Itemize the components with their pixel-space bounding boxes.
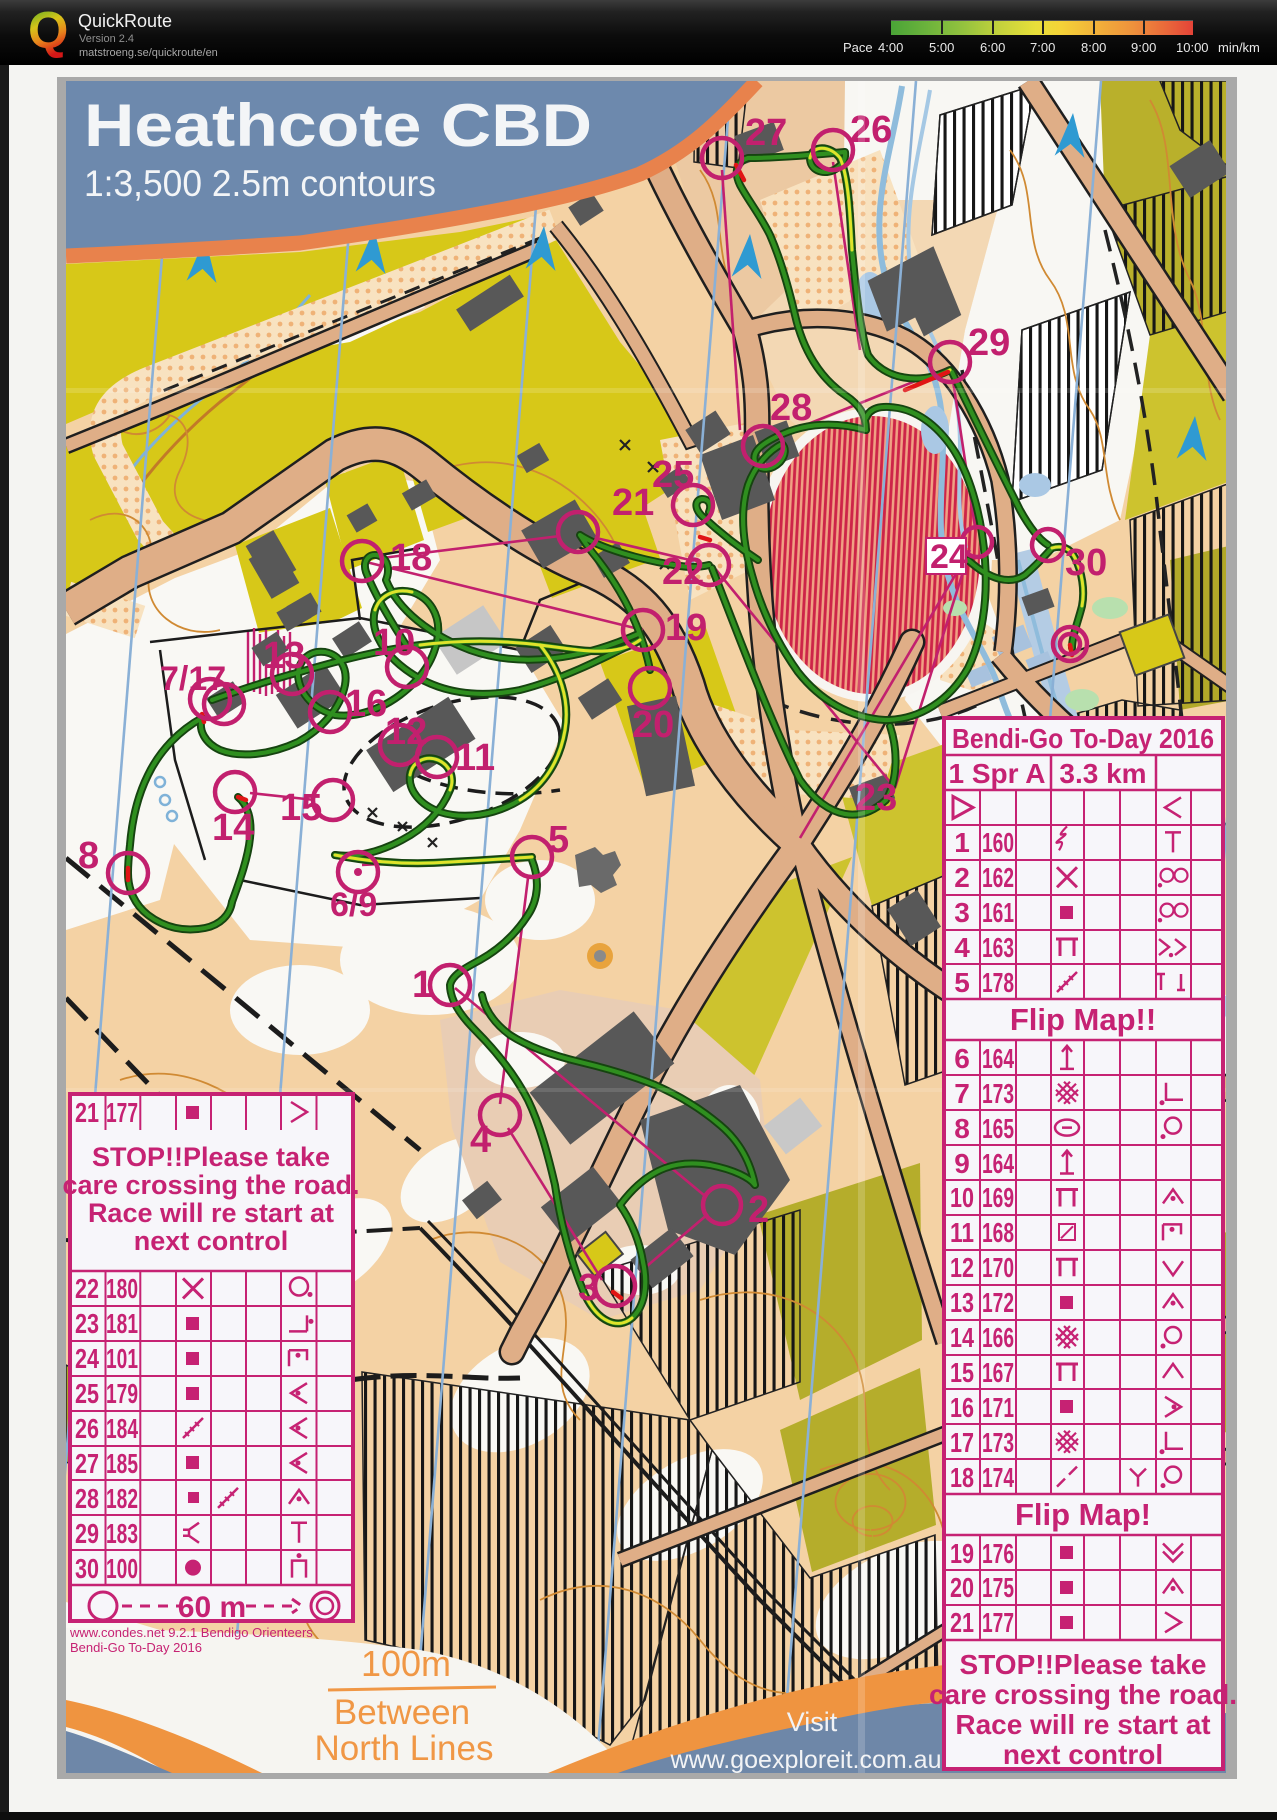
svg-text:22: 22 (75, 1273, 99, 1304)
svg-text:21: 21 (950, 1607, 974, 1638)
svg-text:17: 17 (950, 1427, 974, 1458)
svg-text:13: 13 (263, 635, 305, 677)
svg-text:1: 1 (954, 827, 970, 858)
svg-text:STOP!!Please take: STOP!!Please take (960, 1649, 1207, 1680)
svg-text:10: 10 (373, 622, 415, 664)
svg-text:12: 12 (950, 1252, 974, 1283)
svg-text:care crossing the road.: care crossing the road. (62, 1170, 359, 1200)
svg-text:www.condes.net 9.2.1 Bendigo O: www.condes.net 9.2.1 Bendigo Orienteers (69, 1625, 313, 1640)
svg-text:4: 4 (954, 932, 970, 963)
svg-text:8: 8 (954, 1113, 970, 1144)
svg-text:24: 24 (930, 538, 968, 576)
svg-text:184: 184 (106, 1413, 138, 1444)
svg-text:164: 164 (982, 1148, 1014, 1179)
svg-text:173: 173 (982, 1427, 1014, 1458)
svg-text:178: 178 (982, 967, 1014, 998)
svg-text:28: 28 (770, 387, 812, 429)
svg-text:162: 162 (982, 862, 1014, 893)
svg-text:10: 10 (950, 1182, 974, 1213)
svg-text:Q: Q (28, 2, 68, 60)
svg-text:Flip Map!!: Flip Map!! (1010, 1002, 1156, 1037)
svg-text:185: 185 (106, 1448, 138, 1479)
svg-text:28: 28 (75, 1483, 99, 1514)
svg-text:8: 8 (78, 835, 99, 877)
svg-text:4: 4 (470, 1119, 491, 1161)
svg-text:next control: next control (134, 1226, 289, 1256)
svg-text:172: 172 (982, 1287, 1014, 1318)
svg-text:164: 164 (982, 1043, 1014, 1074)
svg-text:19: 19 (950, 1538, 974, 1569)
svg-text:1 Spr A: 1 Spr A (949, 758, 1046, 789)
svg-text:3.3 km: 3.3 km (1059, 758, 1146, 789)
svg-text:18: 18 (390, 537, 432, 579)
svg-text:1:3,500 2.5m contours: 1:3,500 2.5m contours (84, 163, 436, 204)
svg-text:9: 9 (954, 1148, 970, 1179)
svg-text:182: 182 (106, 1483, 138, 1514)
svg-text:Bendi-Go To-Day 2016: Bendi-Go To-Day 2016 (952, 723, 1214, 754)
svg-text:North Lines: North Lines (315, 1729, 494, 1768)
svg-text:14: 14 (950, 1322, 974, 1353)
svg-text:Visit: Visit (787, 1707, 838, 1737)
svg-text:5: 5 (954, 967, 970, 998)
svg-text:161: 161 (982, 897, 1014, 928)
svg-text:183: 183 (106, 1518, 138, 1549)
svg-text:180: 180 (106, 1273, 138, 1304)
svg-text:20: 20 (632, 704, 674, 746)
svg-text:100: 100 (106, 1553, 138, 1584)
svg-text:Bendi-Go To-Day 2016: Bendi-Go To-Day 2016 (70, 1640, 202, 1655)
svg-text:Race will re start at: Race will re start at (955, 1709, 1210, 1740)
svg-text:16: 16 (950, 1392, 974, 1423)
svg-text:www.goexploreit.com.au: www.goexploreit.com.au (670, 1746, 942, 1774)
svg-text:16: 16 (345, 683, 387, 725)
svg-text:27: 27 (745, 112, 787, 154)
svg-text:22: 22 (662, 551, 704, 593)
svg-text:177: 177 (106, 1097, 138, 1128)
svg-text:3: 3 (578, 1267, 599, 1309)
svg-text:Flip Map!: Flip Map! (1015, 1497, 1151, 1532)
svg-text:29: 29 (75, 1518, 99, 1549)
svg-text:169: 169 (982, 1182, 1014, 1213)
svg-text:176: 176 (982, 1538, 1014, 1569)
svg-text:24: 24 (75, 1343, 99, 1374)
svg-text:Heathcote CBD: Heathcote CBD (84, 92, 592, 159)
svg-text:1: 1 (412, 964, 433, 1006)
svg-text:13: 13 (950, 1287, 974, 1318)
svg-text:11: 11 (950, 1217, 974, 1248)
svg-text:26: 26 (850, 109, 892, 151)
svg-text:STOP!!Please take: STOP!!Please take (92, 1142, 330, 1172)
svg-text:5: 5 (548, 819, 569, 861)
svg-text:166: 166 (982, 1322, 1014, 1353)
svg-text:15: 15 (950, 1357, 974, 1388)
svg-text:160: 160 (982, 827, 1014, 858)
svg-text:27: 27 (75, 1448, 99, 1479)
svg-text:25: 25 (652, 454, 694, 496)
svg-text:6: 6 (954, 1043, 970, 1074)
svg-text:2: 2 (748, 1189, 769, 1231)
svg-text:167: 167 (982, 1357, 1014, 1388)
svg-text:21: 21 (612, 482, 654, 524)
svg-text:19: 19 (665, 607, 707, 649)
svg-text:30: 30 (1065, 542, 1107, 584)
svg-text:7/17: 7/17 (160, 660, 226, 698)
svg-text:6/9: 6/9 (330, 886, 377, 924)
svg-text:171: 171 (982, 1392, 1014, 1423)
svg-text:20: 20 (950, 1572, 974, 1603)
svg-text:173: 173 (982, 1078, 1014, 1109)
svg-text:15: 15 (280, 787, 322, 829)
svg-text:175: 175 (982, 1572, 1014, 1603)
svg-text:60 m: 60 m (178, 1591, 246, 1624)
svg-text:29: 29 (968, 322, 1010, 364)
svg-text:100m: 100m (361, 1643, 451, 1684)
svg-text:181: 181 (106, 1308, 138, 1339)
svg-text:11: 11 (455, 737, 495, 779)
svg-text:174: 174 (982, 1462, 1014, 1493)
svg-text:163: 163 (982, 932, 1014, 963)
svg-text:7: 7 (954, 1078, 970, 1109)
svg-text:26: 26 (75, 1413, 99, 1444)
svg-text:next control: next control (1003, 1739, 1163, 1770)
svg-text:18: 18 (950, 1462, 974, 1493)
svg-text:Between: Between (334, 1693, 470, 1732)
svg-text:Race will re start at: Race will re start at (88, 1198, 334, 1228)
svg-text:12: 12 (385, 711, 427, 753)
svg-text:23: 23 (75, 1308, 99, 1339)
svg-text:177: 177 (982, 1607, 1014, 1638)
svg-text:14: 14 (212, 807, 254, 849)
svg-text:care crossing the road.: care crossing the road. (929, 1679, 1237, 1710)
svg-text:101: 101 (106, 1343, 138, 1374)
svg-text:2: 2 (954, 862, 970, 893)
svg-text:21: 21 (75, 1097, 99, 1128)
svg-text:3: 3 (954, 897, 970, 928)
svg-text:170: 170 (982, 1252, 1014, 1283)
svg-text:165: 165 (982, 1113, 1014, 1144)
svg-text:168: 168 (982, 1217, 1014, 1248)
svg-text:30: 30 (75, 1553, 99, 1584)
svg-text:179: 179 (106, 1378, 138, 1409)
svg-text:25: 25 (75, 1378, 99, 1409)
